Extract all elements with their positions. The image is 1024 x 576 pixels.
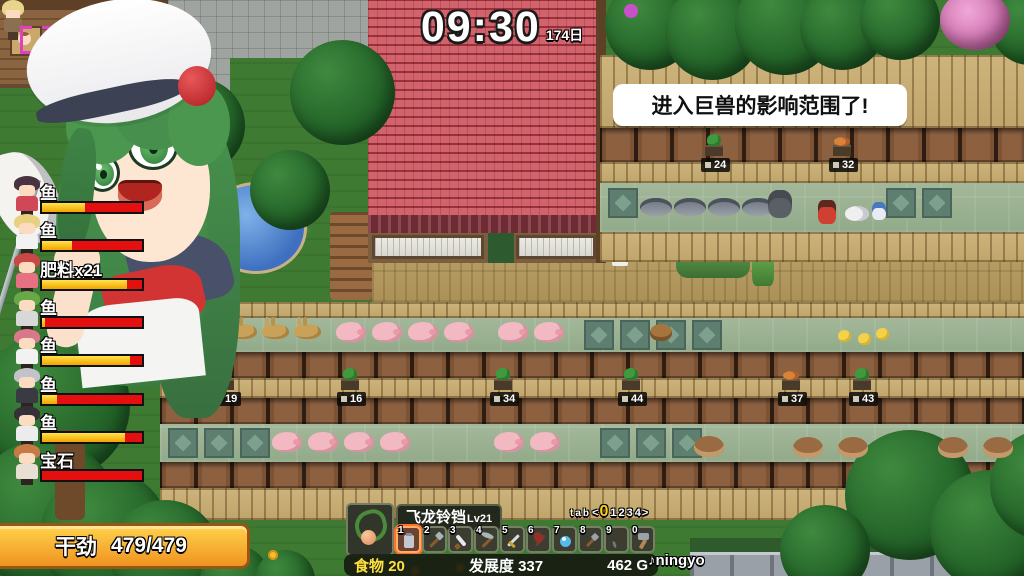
- badge-icon: [782, 396, 788, 402]
- tab-digit-0[interactable]: 0: [599, 505, 608, 519]
- vblue-sprite: [872, 202, 886, 220]
- player-face: [6, 10, 20, 18]
- food-stat: 食物 20: [354, 555, 405, 576]
- npc-portrait: [13, 291, 41, 333]
- pen-pattern-tile: [240, 428, 270, 458]
- hotbar-slot-4[interactable]: 4: [474, 526, 499, 553]
- npc-portrait: [13, 176, 41, 218]
- speech-bubble: 进入巨兽的影响范围了!: [613, 84, 907, 126]
- sprout-icon: [624, 368, 638, 380]
- player-legs: [8, 32, 18, 40]
- tool-part: [562, 537, 566, 541]
- pig-sprite: [530, 432, 560, 452]
- tree: [290, 40, 395, 145]
- pig-sprite: [444, 322, 474, 342]
- badge-icon: [833, 162, 839, 168]
- pig-sprite: [372, 322, 402, 342]
- dev-stat: 发展度 337: [469, 555, 543, 576]
- pig-sprite: [534, 322, 564, 342]
- badge-icon: [705, 162, 711, 168]
- fish-icon: [834, 137, 850, 146]
- hotbar-slot-0[interactable]: 0: [630, 526, 655, 553]
- pen-pattern-tile: [692, 320, 722, 350]
- npc-dress: [16, 426, 38, 441]
- hamster-sprite: [983, 437, 1013, 458]
- hotbar-slot-3[interactable]: 3: [448, 526, 473, 553]
- planter-pot: [494, 379, 512, 390]
- tab-digit-3[interactable]: 3: [627, 507, 633, 519]
- hamster-sprite: [838, 437, 868, 458]
- dragon-bell-fruit: [361, 530, 376, 545]
- hotbar-slot-number: 3: [450, 525, 456, 536]
- tool-part: [508, 541, 516, 549]
- wolf-sprite: [674, 198, 706, 216]
- sprout-icon: [855, 368, 869, 380]
- wolf-sprite: [708, 198, 740, 216]
- pig-sprite: [380, 432, 410, 452]
- pen-pattern-tile: [204, 428, 234, 458]
- pen-planter: [781, 370, 801, 390]
- npc-request-gauge: [40, 469, 144, 482]
- hotbar-slot-7[interactable]: 7: [552, 526, 577, 553]
- hen-sprite: [650, 324, 672, 341]
- hamster-sprite: [938, 437, 968, 458]
- sprout-icon: [496, 368, 510, 380]
- pen-count-badge: 37: [778, 392, 807, 406]
- hotbar-slot-number: 5: [502, 525, 508, 536]
- npc-request-gauge: [40, 354, 144, 367]
- pig-sprite: [408, 322, 438, 342]
- plank-row: [600, 162, 1024, 183]
- tab-label: tab: [570, 508, 591, 519]
- chick-sprite: [876, 328, 889, 340]
- motivation-gauge: 干劲 479/479: [0, 523, 250, 569]
- pig-sprite: [336, 322, 366, 342]
- npc-request-row: 鱼: [0, 410, 200, 448]
- pen-count-badge: 44: [618, 392, 647, 406]
- pen-pattern-tile: [600, 428, 630, 458]
- equipped-item-slot[interactable]: [346, 503, 394, 556]
- pen-count-badge: 32: [829, 158, 858, 172]
- girl-beret-pom: [178, 66, 216, 106]
- npc-face: [19, 415, 35, 426]
- npc-request-gauge-fill: [42, 395, 57, 404]
- pig-sprite: [498, 322, 528, 342]
- npc-request-gauge-fill: [42, 241, 72, 250]
- hotbar-slot-number: 2: [424, 525, 430, 536]
- plank-row: [600, 232, 1024, 262]
- planter-pot: [782, 379, 800, 390]
- hotbar-slot-number: 4: [476, 525, 482, 536]
- npc-face: [19, 223, 35, 234]
- fish-icon: [783, 371, 799, 380]
- hotbar-slot-number: 0: [632, 525, 638, 536]
- chick-sprite: [838, 330, 851, 342]
- pen-count-badge: 24: [701, 158, 730, 172]
- sprout-icon: [707, 134, 721, 146]
- pen-count-badge: 16: [337, 392, 366, 406]
- npc-dress: [16, 273, 38, 288]
- pen-count-badge: 34: [490, 392, 519, 406]
- tool-part: [404, 535, 414, 548]
- tab-digit-1[interactable]: 1: [610, 507, 616, 519]
- npc-face: [19, 338, 35, 349]
- pen-pattern-tile: [608, 188, 638, 218]
- tree: [250, 150, 330, 230]
- pen-planter: [852, 370, 872, 390]
- pen-planter: [493, 370, 513, 390]
- tab-close-bracket[interactable]: >: [642, 507, 648, 519]
- sprout-icon: [343, 368, 357, 380]
- hotbar-tab-selector[interactable]: tab < 01234 >: [570, 505, 648, 519]
- status-bar: 食物 20 发展度 337 462 G: [344, 554, 658, 576]
- gold-value: 462 G: [607, 557, 648, 574]
- plank-row: [160, 378, 1024, 398]
- npc-request-row: 鱼: [0, 372, 200, 410]
- rabbit-sprite: [294, 324, 321, 339]
- npc-request-gauge: [40, 201, 144, 214]
- npc-dress: [16, 349, 38, 364]
- game-screen: 2432191634443743: [0, 0, 1024, 576]
- pen-pattern-tile: [636, 428, 666, 458]
- pen-planter: [704, 136, 724, 156]
- npc-request-row: 宝石: [0, 448, 200, 486]
- flower-yellow: [268, 550, 278, 560]
- pen-pattern-tile: [584, 320, 614, 350]
- food-label: 食物: [354, 558, 384, 575]
- hotbar: 1234567890: [396, 526, 655, 553]
- pig-sprite: [272, 432, 302, 452]
- planter-pot: [341, 379, 359, 390]
- npc-request-row: 鱼: [0, 333, 200, 371]
- equipped-item-level: Lv21: [467, 513, 492, 525]
- hotbar-slot-1[interactable]: 1: [396, 526, 421, 553]
- pen-planter: [340, 370, 360, 390]
- npc-dress: [16, 464, 38, 479]
- vred-sprite: [818, 200, 836, 224]
- npc-request-gauge-fill: [42, 280, 127, 289]
- npc-portrait: [13, 253, 41, 295]
- pen-planter: [621, 370, 641, 390]
- planter-pot: [705, 145, 723, 156]
- tab-digit-2[interactable]: 2: [618, 507, 624, 519]
- hotbar-slot-number: 9: [606, 525, 612, 536]
- pen-count-badge: 43: [849, 392, 878, 406]
- pen-pattern-tile: [620, 320, 650, 350]
- npc-request-row: 鱼: [0, 180, 200, 218]
- npc-request-row: 肥料x21: [0, 257, 200, 295]
- npc-request-row: 鱼: [0, 218, 200, 256]
- motivation-value: 479/479: [111, 534, 187, 558]
- npc-request-gauge: [40, 239, 144, 252]
- hotbar-slot-number: 7: [554, 525, 560, 536]
- tool-part: [406, 533, 412, 536]
- clock-day: 174日: [546, 25, 583, 45]
- npc-face: [19, 453, 35, 464]
- npc-request-gauge-fill: [42, 318, 45, 327]
- pen-pattern-tile: [922, 188, 952, 218]
- rabbit-sprite: [262, 324, 289, 339]
- hamster-sprite: [793, 437, 823, 458]
- pig-sprite: [344, 432, 374, 452]
- hotbar-slot-6[interactable]: 6: [526, 526, 551, 553]
- npc-request-gauge-fill: [42, 203, 85, 212]
- npc-request-gauge: [40, 316, 144, 329]
- trough-row: [160, 398, 1024, 424]
- npc-face: [19, 300, 35, 311]
- speech-bubble-text: 进入巨兽的影响范围了!: [652, 90, 869, 120]
- raccoon-sprite: [768, 190, 792, 218]
- hotbar-slot-8[interactable]: 8: [578, 526, 603, 553]
- tool-part: [638, 533, 649, 540]
- pen-planter: [832, 136, 852, 156]
- hotbar-slot-number: 1: [398, 525, 404, 536]
- wolf-sprite: [640, 198, 672, 216]
- hotbar-slot-2[interactable]: 2: [422, 526, 447, 553]
- cat-sprite: [845, 206, 869, 221]
- npc-dress: [16, 196, 38, 211]
- npc-request-gauge-fill: [42, 433, 125, 442]
- pig-sprite: [308, 432, 338, 452]
- badge-icon: [494, 396, 500, 402]
- plank-row: [160, 302, 1024, 318]
- npc-portrait: [13, 406, 41, 448]
- npc-face: [19, 262, 35, 273]
- music-track-label: ♪ningyo: [648, 552, 705, 569]
- npc-request-gauge-fill: [42, 356, 130, 365]
- badge-icon: [853, 396, 859, 402]
- clock: 09:30 174日: [362, 2, 642, 52]
- npc-request-gauge: [40, 393, 144, 406]
- dev-label: 发展度: [469, 558, 514, 575]
- pen-pattern-tile: [886, 188, 916, 218]
- food-value: 20: [388, 558, 405, 575]
- npc-request-gauge: [40, 431, 144, 444]
- npc-dress: [16, 234, 38, 249]
- clock-time: 09:30: [421, 2, 541, 52]
- npc-portrait: [13, 368, 41, 410]
- npc-portrait: [13, 214, 41, 256]
- trough-row: [160, 352, 1024, 378]
- hamster-sprite: [694, 436, 724, 457]
- npc-face: [19, 185, 35, 196]
- npc-request-gauge: [40, 278, 144, 291]
- tab-digit-4[interactable]: 4: [635, 507, 641, 519]
- pig-sprite: [494, 432, 524, 452]
- dev-value: 337: [518, 558, 543, 575]
- chick-sprite: [858, 333, 871, 345]
- hotbar-slot-9[interactable]: 9: [604, 526, 629, 553]
- hotbar-slot-number: 6: [528, 525, 534, 536]
- badge-icon: [341, 396, 347, 402]
- npc-portrait: [13, 444, 41, 486]
- npc-legs: [21, 479, 33, 485]
- npc-dress: [16, 311, 38, 326]
- hotbar-slot-5[interactable]: 5: [500, 526, 525, 553]
- trough-row: [600, 128, 1024, 162]
- planter-pot: [622, 379, 640, 390]
- npc-face: [19, 377, 35, 388]
- tool-part: [639, 539, 647, 550]
- hotbar-slot-number: 8: [580, 525, 586, 536]
- planter-pot: [853, 379, 871, 390]
- tool-part: [454, 543, 461, 550]
- badge-icon: [622, 396, 628, 402]
- npc-request-row: 鱼: [0, 295, 200, 333]
- npc-dress: [16, 388, 38, 403]
- tree: [255, 550, 315, 576]
- motivation-label: 干劲: [55, 531, 97, 561]
- tab-digits: 01234: [598, 505, 641, 519]
- planter-pot: [833, 145, 851, 156]
- npc-portrait: [13, 329, 41, 371]
